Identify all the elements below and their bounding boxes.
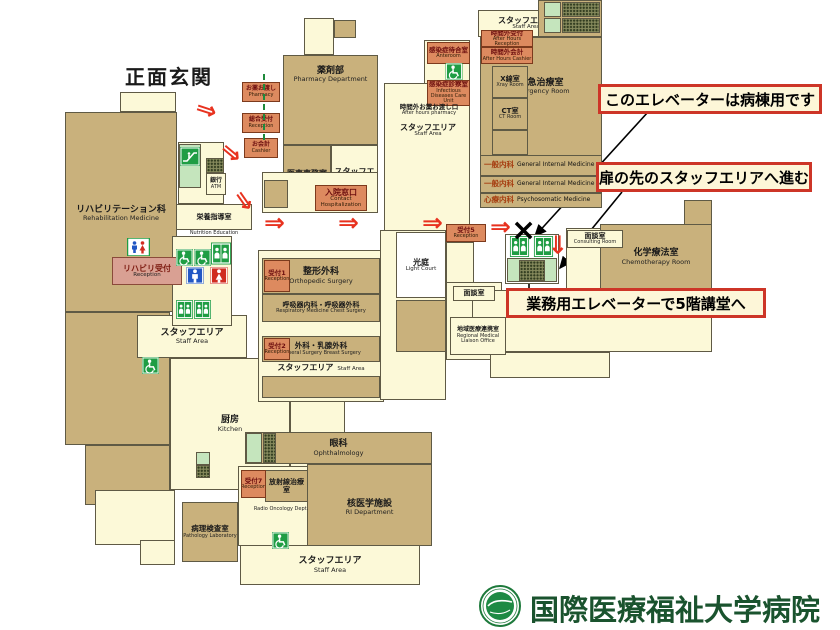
pharmacy-counter-label-en: Pharmacy bbox=[246, 93, 276, 98]
staff-area-clinic-label-jp: スタッフエリア bbox=[277, 363, 333, 372]
general-reception-label-en: Reception bbox=[249, 124, 274, 129]
callout-ward-elevator: このエレベーターは病棟用です bbox=[598, 84, 822, 114]
men-icon bbox=[186, 267, 204, 284]
map-cell bbox=[246, 433, 262, 463]
ophthalmology-en: Ophthalmology bbox=[314, 450, 364, 457]
cashier-label-jp: お会計 bbox=[252, 142, 271, 149]
light-court: 光庭Light Court bbox=[396, 232, 446, 298]
bank-atm-label-en: ATM bbox=[210, 185, 222, 190]
after-hours-pharmacy-label-en: After hours pharmacy bbox=[400, 111, 459, 116]
kitchen-en: Kitchen bbox=[218, 426, 242, 433]
main-entrance-label-jp: 正面玄関 bbox=[125, 66, 213, 89]
psychosomatic-medicine-en: Psychosomatic Medicine bbox=[517, 197, 590, 203]
respiratory-chest-surgery-en: Respiratory Medicine Chest Surgery bbox=[276, 309, 366, 314]
ri-department-jp: 核医学施設 bbox=[308, 499, 431, 509]
map-cell bbox=[544, 18, 561, 33]
pharmacy-department-jp: 薬剤部 bbox=[284, 66, 377, 76]
after-hours-reception-label: 時間外受付After Hours Reception bbox=[481, 30, 533, 47]
direction-arrow-icon: ⇒ bbox=[422, 210, 443, 235]
radio-oncology-en-label-en: Radio Oncology Dept. bbox=[254, 507, 308, 512]
bottom-right-cream-2 bbox=[490, 352, 610, 378]
staff-area-infection-label-jp: スタッフエリア bbox=[400, 123, 456, 132]
pharmacy-department: 薬剤部Pharmacy Department bbox=[283, 55, 378, 145]
orthopedic-surgery-jp: 整形外科 bbox=[289, 267, 353, 277]
hospital-logo-icon bbox=[478, 584, 522, 630]
consulting-room-1-label-en: Consulting Room bbox=[574, 240, 616, 245]
elevator-icon bbox=[194, 298, 211, 321]
hospital-footer: 国際医療福祉大学病院 bbox=[478, 584, 820, 630]
nutrition-education-en-label: Nutrition Education bbox=[176, 229, 252, 239]
map-cell bbox=[562, 2, 600, 17]
after-hours-cashier-label: 時間外会計After Hours Cashier bbox=[481, 47, 533, 64]
xray-room: X線室Xray Room bbox=[492, 66, 528, 98]
liaison-office-label: 地域医療連携室Regional Medical Liaison Office bbox=[450, 317, 506, 355]
liaison-office-label-en: Regional Medical Liaison Office bbox=[451, 334, 505, 345]
direction-arrow-icon: ⇒ bbox=[546, 234, 571, 255]
map-cell bbox=[544, 2, 561, 17]
ophthalmology-jp: 眼科 bbox=[314, 439, 364, 449]
map-cell bbox=[519, 260, 545, 281]
reception1-label: 受付1Reception bbox=[264, 260, 290, 292]
after-hours-reception-label-en: After Hours Reception bbox=[482, 37, 532, 47]
general-internal-medicine-2: 一般内科General Internal Medicine bbox=[480, 176, 602, 193]
psychosomatic-medicine-jp: 心療内科 bbox=[484, 196, 514, 205]
kitchen-jp: 厨房 bbox=[218, 415, 242, 425]
callout-staff-door: 扉の先のスタッフエリアへ進む bbox=[596, 162, 812, 192]
pharmacy-strip bbox=[304, 18, 334, 55]
anteroom-label: 感染症待合室Anteroom bbox=[427, 42, 470, 64]
staff-area-bottom: スタッフエリアStaff Area bbox=[240, 545, 420, 585]
cell-below-ct bbox=[492, 130, 528, 155]
nutrition-education-room-jp: 栄養指導室 bbox=[197, 213, 232, 221]
direction-arrow-icon: ⇒ bbox=[193, 94, 221, 124]
general-internal-medicine-1-jp: 一般内科 bbox=[484, 161, 514, 170]
map-cell bbox=[196, 465, 210, 478]
direction-arrow-icon: ⇒ bbox=[264, 210, 285, 235]
reception7-label-jp: 受付7 bbox=[241, 478, 266, 485]
chemo-side-block bbox=[684, 200, 712, 226]
ri-department: 核医学施設RI Department bbox=[307, 464, 432, 546]
after-hours-cashier-label-en: After Hours Cashier bbox=[483, 57, 532, 62]
staff-area-left-en: Staff Area bbox=[160, 338, 223, 345]
reception5-label: 受付5Reception bbox=[446, 224, 486, 242]
radio-oncology: 放射線治療室 bbox=[265, 470, 308, 502]
main-entrance-label: 正面玄関 bbox=[104, 62, 234, 92]
ct-room: CT室CT Room bbox=[492, 98, 528, 130]
cashier-label-en: Cashier bbox=[252, 149, 271, 154]
respiratory-chest-surgery-jp: 呼吸器内科・呼吸器外科 bbox=[276, 301, 366, 309]
floor-plan: 国際医療福祉大学病院 リハビリテーション科Rehabilitation Medi… bbox=[0, 0, 840, 630]
callout-service-elevator: 業務用エレベーターで5階講堂へ bbox=[506, 288, 766, 318]
staff-area-bottom-en: Staff Area bbox=[298, 567, 361, 574]
consulting-room-1-label: 面談室Consulting Room bbox=[567, 230, 623, 248]
reception-flow-line bbox=[263, 74, 265, 140]
staff-area-bottom-jp: スタッフエリア bbox=[298, 556, 361, 566]
chemotherapy-room-jp: 化学療法室 bbox=[622, 248, 691, 258]
pathology-laboratory: 病理検査室Pathology Laboratory bbox=[182, 502, 238, 562]
orthopedic-surgery-en: Orthopedic Surgery bbox=[289, 278, 353, 285]
general-breast-surgery-jp: 外科・乳腺外科 bbox=[281, 342, 361, 351]
consulting-room-2-label-jp: 面談室 bbox=[464, 289, 485, 297]
reception2-label: 受付2Reception bbox=[264, 338, 290, 360]
pharmacy-counter-label-jp: お薬お渡し bbox=[246, 86, 276, 93]
xray-room-jp: X線室 bbox=[496, 75, 523, 83]
reception2-label-jp: 受付2 bbox=[265, 343, 290, 350]
entrance-notch bbox=[120, 92, 176, 112]
after-hours-reception-label-jp: 時間外受付 bbox=[482, 30, 532, 37]
pharmacy-counter-label: お薬お渡しPharmacy bbox=[242, 82, 280, 102]
reception2-label-en: Reception bbox=[265, 350, 290, 355]
staff-area-clinic-label: スタッフエリアStaff Area bbox=[262, 361, 380, 375]
ct-room-jp: CT室 bbox=[499, 107, 521, 115]
elevator-icon bbox=[176, 298, 193, 321]
direction-arrow-icon: ⇒ bbox=[338, 210, 359, 235]
consulting-room-1-label-jp: 面談室 bbox=[574, 232, 616, 240]
not-available-x-mark: × bbox=[511, 216, 536, 246]
rehabilitation-dept-en: Rehabilitation Medicine bbox=[66, 215, 176, 222]
escalator-icon bbox=[180, 147, 200, 166]
bank-atm-label-jp: 銀行 bbox=[210, 178, 222, 185]
toilet-icon bbox=[127, 238, 150, 256]
elevator-icon bbox=[211, 241, 231, 266]
light-court-en: Light Court bbox=[406, 267, 437, 273]
direction-arrow-icon: ⇒ bbox=[490, 214, 511, 239]
rehab-reception-label-en: Reception bbox=[123, 273, 171, 279]
staff-area-infection-label: スタッフエリアStaff Area bbox=[390, 121, 466, 139]
anteroom-label-jp: 感染症待合室 bbox=[429, 47, 468, 54]
after-hours-pharmacy-label: 時間外お薬お渡し口After hours pharmacy bbox=[386, 101, 472, 119]
staff-area-left-jp: スタッフエリア bbox=[160, 328, 223, 338]
nutrition-education-en-label-en: Nutrition Education bbox=[190, 231, 238, 236]
reception1-label-en: Reception bbox=[265, 277, 290, 282]
general-internal-medicine-1: 一般内科General Internal Medicine bbox=[480, 155, 602, 176]
infectious-diseases-label-jp: 感染症診察室 bbox=[428, 81, 469, 88]
clinic-cells-row bbox=[262, 376, 380, 398]
cashier-label: お会計Cashier bbox=[244, 138, 278, 158]
map-cell bbox=[562, 18, 600, 33]
reception7-label: 受付7Reception bbox=[241, 470, 266, 498]
respiratory-chest-surgery: 呼吸器内科・呼吸器外科Respiratory Medicine Chest Su… bbox=[262, 294, 380, 322]
wheelchair-icon bbox=[176, 249, 193, 266]
wheelchair-icon bbox=[444, 63, 464, 80]
admin-under-cell bbox=[264, 180, 288, 208]
reception7-label-en: Reception bbox=[241, 485, 266, 490]
left-steps-2 bbox=[140, 540, 175, 565]
radio-oncology-en-label: Radio Oncology Dept. bbox=[250, 502, 312, 518]
pharmacy-cell bbox=[334, 20, 356, 38]
map-cell bbox=[196, 452, 210, 465]
pathology-laboratory-jp: 病理検査室 bbox=[183, 525, 236, 534]
after-hours-pharmacy-label-jp: 時間外お薬お渡し口 bbox=[400, 104, 459, 111]
left-steps bbox=[95, 490, 175, 545]
general-reception-label-jp: 総合受付 bbox=[249, 117, 274, 124]
general-reception-label: 総合受付Reception bbox=[242, 113, 280, 133]
hospitalization-window-label-jp: 入院窓口 bbox=[316, 188, 366, 197]
wheelchair-icon bbox=[194, 249, 211, 266]
staff-area-clinic-label-en: Staff Area bbox=[337, 367, 364, 373]
wheelchair-icon bbox=[142, 357, 159, 374]
court-cell bbox=[396, 300, 446, 352]
rehab-reception-label-jp: リハビリ受付 bbox=[123, 264, 171, 273]
ct-room-en: CT Room bbox=[499, 115, 521, 120]
xray-room-en: Xray Room bbox=[496, 83, 523, 88]
reception5-label-jp: 受付5 bbox=[454, 227, 479, 234]
general-internal-medicine-2-en: General Internal Medicine bbox=[517, 181, 594, 187]
reception1-label-jp: 受付1 bbox=[265, 270, 290, 277]
women-icon bbox=[210, 267, 228, 284]
general-internal-medicine-2-jp: 一般内科 bbox=[484, 180, 514, 189]
anteroom-label-en: Anteroom bbox=[429, 54, 468, 59]
general-breast-surgery-en: General Surgery Breast Surgery bbox=[281, 351, 361, 356]
consulting-room-2-label: 面談室 bbox=[453, 286, 495, 301]
wheelchair-icon bbox=[272, 532, 289, 549]
ri-department-en: RI Department bbox=[308, 509, 431, 516]
reception5-label-en: Reception bbox=[454, 234, 479, 239]
pathology-laboratory-en: Pathology Laboratory bbox=[183, 534, 236, 539]
psychosomatic-medicine: 心療内科Psychosomatic Medicine bbox=[480, 193, 602, 208]
hospital-name: 国際医療福祉大学病院 bbox=[530, 587, 820, 629]
bank-atm-label: 銀行ATM bbox=[206, 173, 226, 195]
after-hours-cashier-label-jp: 時間外会計 bbox=[483, 49, 532, 56]
pharmacy-department-en: Pharmacy Department bbox=[284, 76, 377, 83]
general-internal-medicine-1-en: General Internal Medicine bbox=[517, 162, 594, 168]
staff-area-infection-label-en: Staff Area bbox=[400, 132, 456, 138]
radio-oncology-jp: 放射線治療室 bbox=[266, 478, 307, 494]
hospitalization-window-label-en: Contact Hospitalization bbox=[316, 197, 366, 209]
map-cell bbox=[263, 433, 276, 463]
liaison-office-label-jp: 地域医療連携室 bbox=[451, 327, 505, 334]
rehabilitation-dept-jp: リハビリテーション科 bbox=[66, 205, 176, 215]
light-court-jp: 光庭 bbox=[406, 258, 437, 267]
chemotherapy-room-en: Chemotherapy Room bbox=[622, 259, 691, 266]
rehab-reception-label: リハビリ受付Reception bbox=[112, 257, 182, 285]
